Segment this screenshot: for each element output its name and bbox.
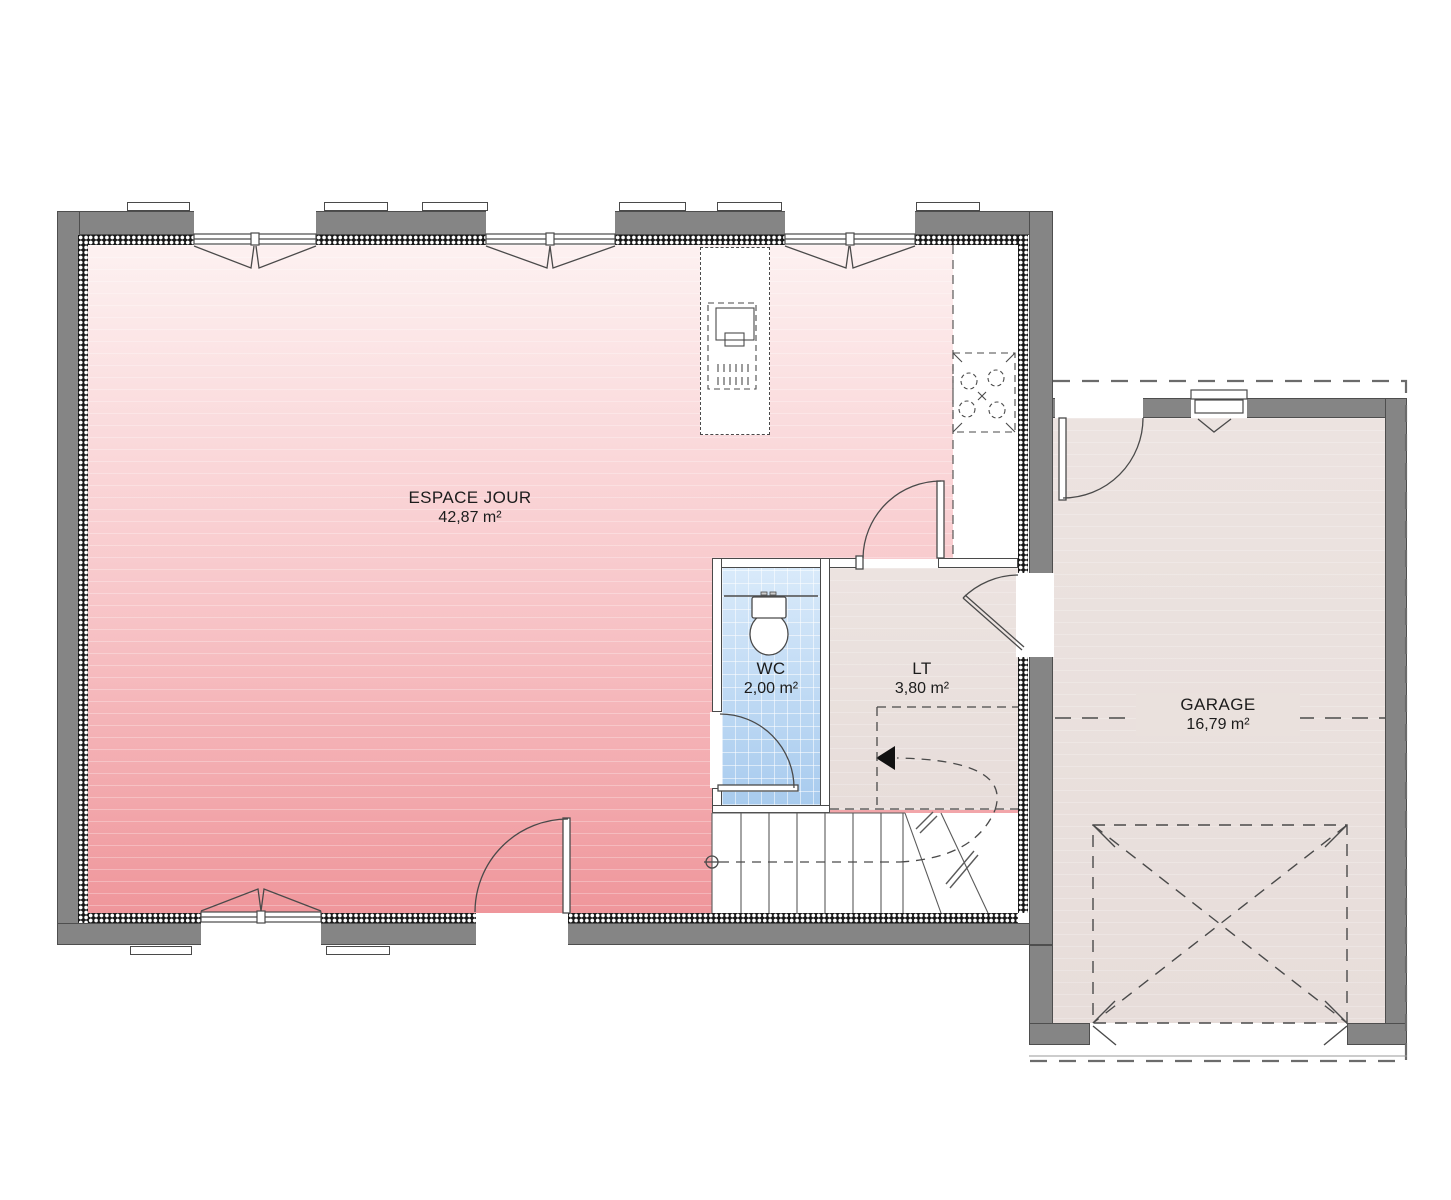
shutter — [324, 202, 388, 211]
garage-wall-bottom-left — [1029, 1023, 1090, 1045]
shutter — [127, 202, 190, 211]
insulation-left — [78, 235, 88, 923]
shutter — [130, 946, 192, 955]
wc-lt-wall — [820, 558, 830, 813]
room-area: 16,79 m² — [1142, 715, 1294, 735]
room-label-garage: GARAGE 16,79 m² — [1136, 693, 1300, 736]
insulation-right-2 — [1018, 655, 1028, 913]
shutter — [717, 202, 782, 211]
insulation-top-1 — [88, 235, 194, 245]
window-bottom-opening — [201, 913, 321, 945]
window-top-2-opening — [486, 211, 615, 245]
room-label-lt: LT 3,80 m² — [862, 658, 982, 699]
shutter — [326, 946, 390, 955]
shutter — [619, 202, 686, 211]
room-area: 2,00 m² — [726, 679, 816, 699]
room-area: 3,80 m² — [862, 679, 982, 699]
room-area: 42,87 m² — [330, 508, 610, 528]
insulation-top-4 — [915, 235, 1018, 245]
room-name: GARAGE — [1142, 694, 1294, 715]
insulation-bottom-1 — [88, 913, 201, 923]
insulation-bottom-2 — [321, 913, 476, 923]
insulation-bottom-3 — [568, 913, 1018, 923]
room-name: WC — [726, 658, 816, 679]
garage-wall-bottom-right — [1347, 1023, 1407, 1045]
garage-window-opening — [1191, 398, 1247, 418]
room-name: LT — [862, 658, 982, 679]
wc-left-wall-upper — [712, 558, 722, 712]
shutter — [916, 202, 980, 211]
garage-threshold — [1029, 1045, 1407, 1056]
floor-plan: ESPACE JOUR 42,87 m² WC 2,00 m² LT 3,80 … — [0, 0, 1451, 1200]
insulation-right-1 — [1018, 235, 1028, 575]
garage-service-door-opening — [1055, 398, 1143, 418]
insulation-top-2 — [316, 235, 486, 245]
partition-espacejour-lt — [938, 558, 1018, 568]
room-name: ESPACE JOUR — [330, 487, 610, 508]
house-wall-left — [57, 211, 80, 945]
kitchen-island — [700, 247, 770, 435]
window-top-1-opening — [194, 211, 316, 245]
window-top-3-opening — [785, 211, 915, 245]
insulation-top-3 — [615, 235, 785, 245]
shutter — [422, 202, 488, 211]
room-label-wc: WC 2,00 m² — [726, 658, 816, 699]
garage-wall-right — [1385, 398, 1407, 1045]
lt-garage-door-opening — [1016, 573, 1054, 657]
kitchen-counter — [953, 245, 1018, 558]
entrance-door-opening — [476, 913, 568, 945]
stairwell-floor — [712, 813, 1018, 913]
partition-espacejour-wc — [712, 558, 863, 568]
room-label-espace-jour: ESPACE JOUR 42,87 m² — [330, 487, 610, 528]
wc-bottom-wall — [712, 805, 830, 813]
